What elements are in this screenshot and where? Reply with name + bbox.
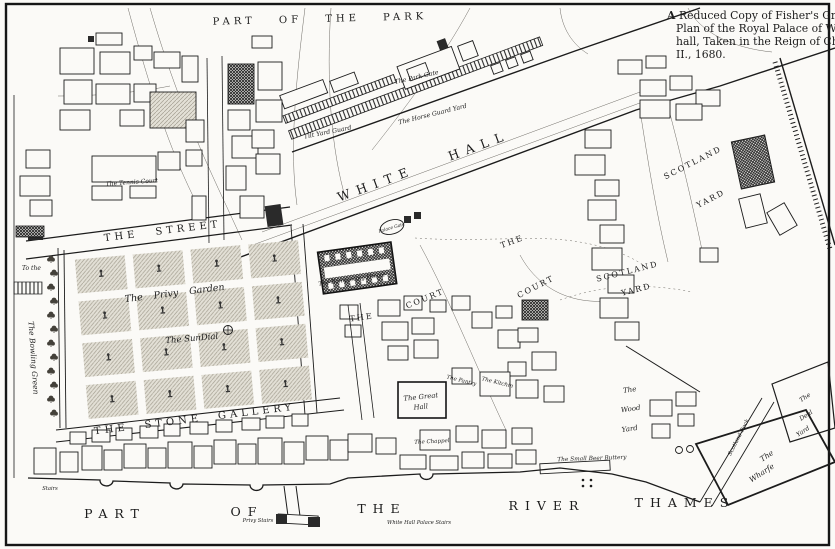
cluster-court-buildings [340, 296, 694, 454]
river-word-thames: THAMES [635, 495, 736, 510]
buttery-label: The Small Beer Buttery [557, 455, 627, 463]
scotland-yard1-l1: SCOTLAND [662, 144, 723, 181]
scotland-yard1-l2: YARD [694, 188, 726, 210]
river-label: PART OF THE RIVER THAMES [84, 495, 735, 521]
title-line2: Plan of the Royal Palace of White- [676, 22, 835, 35]
title-line3: hall, Taken in the Reign of Charles [676, 35, 835, 48]
street-label: THE STREET [103, 219, 222, 244]
court2-label: COURT [516, 274, 556, 300]
cluster-tennis-court [92, 152, 180, 200]
great-hall-label-2: Hall [412, 402, 428, 412]
river-word-part: PART [84, 506, 146, 521]
shoreline [28, 468, 700, 502]
cluster-scotland-yard [575, 56, 835, 438]
title-line4: II., 1680. [676, 48, 726, 61]
court2-the-label: THE [499, 233, 525, 250]
park-label: PART OF THE PARK [213, 11, 428, 28]
title-initial: A [666, 9, 676, 22]
title-block: A Reduced Copy of Fisher's Ground Plan o… [666, 9, 835, 61]
whitehall-stairs-label: White Hall Palace Stairs [387, 520, 451, 526]
river-word-the: THE [357, 501, 406, 516]
wood-yard-label-2: Wood [620, 404, 641, 415]
river-marks [582, 479, 593, 488]
holbein-gate [265, 204, 284, 227]
privy-garden-plots [75, 240, 312, 419]
map-page: A Reduced Copy of Fisher's Ground Plan o… [0, 0, 835, 549]
wharfe-label-1: The [758, 448, 775, 464]
title-line1: Reduced Copy of Fisher's Ground [679, 9, 835, 22]
horse-guard-yard-label: The Horse Guard Yard [398, 103, 468, 127]
sundial-glyph [224, 326, 233, 335]
river-word-of: OF [231, 504, 264, 519]
left-stairs-label: Stairs [42, 486, 58, 492]
tree-row [47, 256, 58, 417]
wood-yard-label-3: Yard [621, 424, 639, 434]
court1-the-label: THE [349, 311, 374, 323]
wharfe-label-2: Wharfe [748, 461, 777, 484]
deal-yard-label-1: The [798, 391, 812, 403]
river-word-river: RIVER [509, 498, 586, 513]
wood-yard-label-1: The [623, 385, 637, 395]
bowling-green-label: The Bowling Green [26, 321, 40, 395]
whitehall-map: A Reduced Copy of Fisher's Ground Plan o… [0, 0, 835, 549]
privy-stairs-pier [276, 486, 320, 527]
scotland-dock-label: Scotland Dock [727, 418, 751, 457]
privy-stairs-label: Privy Stairs [242, 518, 274, 524]
to-the-label: To the [22, 265, 41, 272]
wharfe-outline [696, 362, 835, 506]
